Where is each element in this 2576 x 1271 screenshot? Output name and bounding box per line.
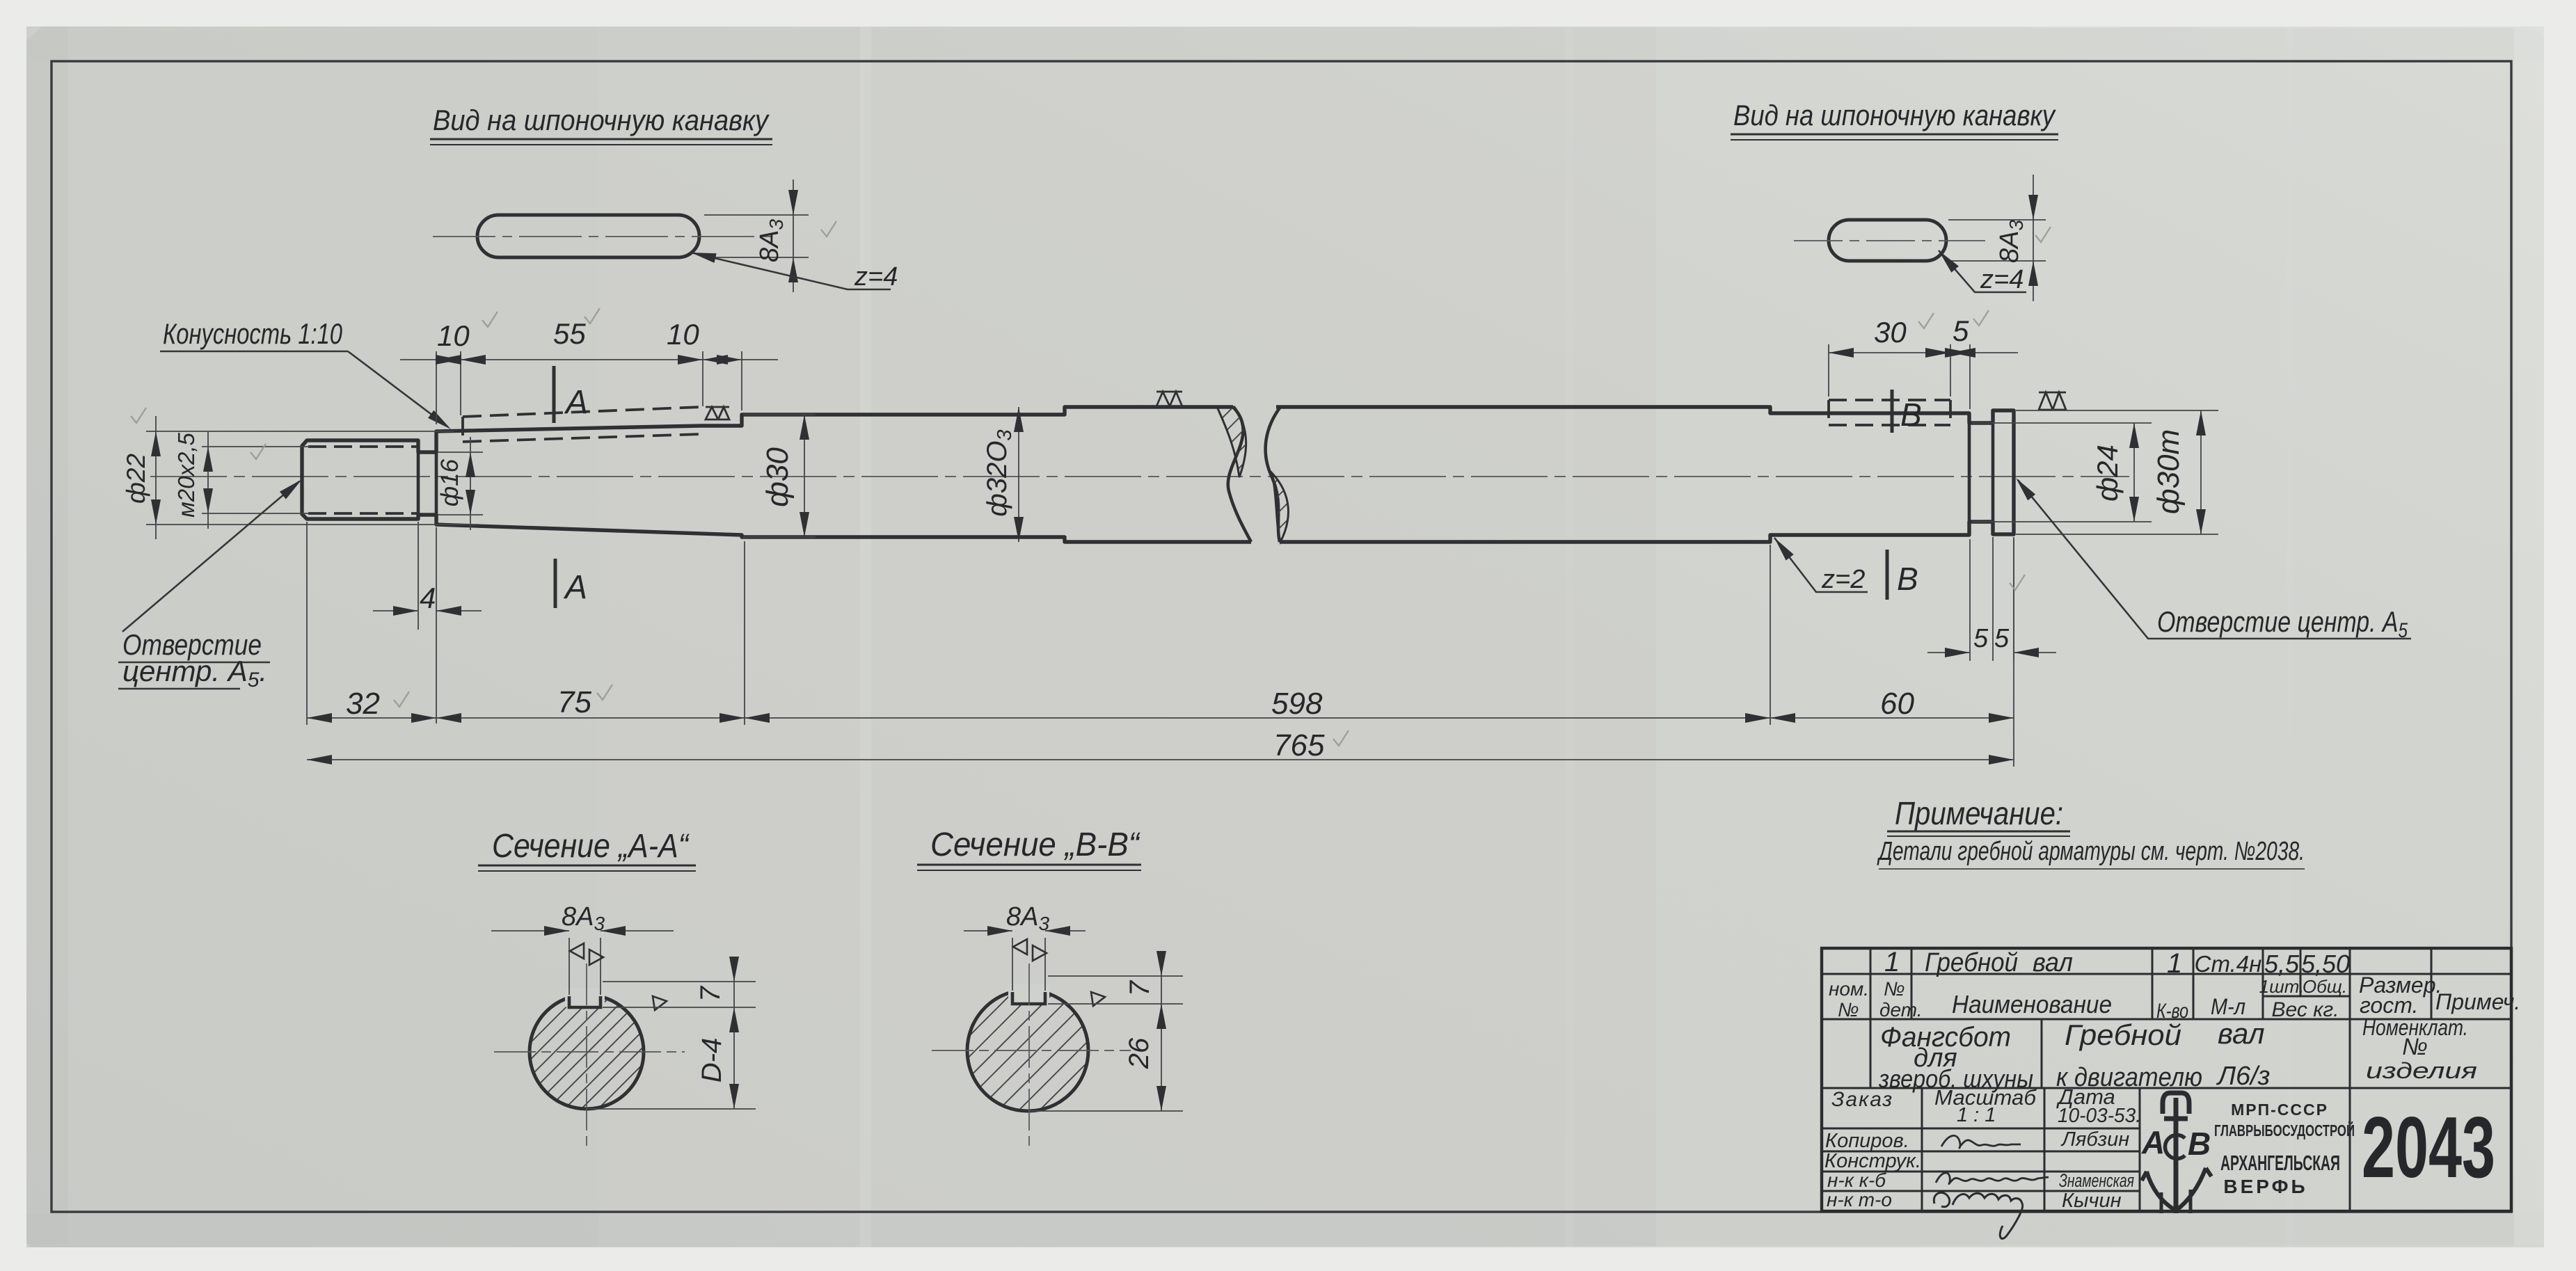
svg-text:10: 10 [667, 318, 699, 351]
svg-text:Конусность 1:10: Конусность 1:10 [163, 317, 342, 350]
svg-text:ВЕРФЬ: ВЕРФЬ [2223, 1176, 2307, 1197]
svg-text:4: 4 [420, 582, 436, 614]
svg-text:26: 26 [1124, 1037, 1154, 1069]
svg-text:Знаменская: Знаменская [2059, 1170, 2134, 1191]
svg-text:5: 5 [1994, 624, 2010, 653]
svg-text:№: № [2402, 1034, 2428, 1060]
svg-text:Вес кг.: Вес кг. [2272, 998, 2339, 1021]
svg-text:гост.: гост. [2360, 993, 2418, 1018]
svg-text:В: В [2188, 1126, 2211, 1162]
svg-text:дет.: дет. [1879, 999, 1923, 1021]
svg-text:7: 7 [1124, 980, 1155, 996]
svg-text:н-к т-о: н-к т-о [1827, 1189, 1892, 1210]
svg-text:А: А [563, 569, 587, 606]
svg-text:ф30: ф30 [761, 447, 795, 507]
svg-text:н-к к-б: н-к к-б [1827, 1169, 1886, 1191]
svg-text:598: 598 [1271, 687, 1323, 721]
svg-text:Сечение „В-В“: Сечение „В-В“ [930, 826, 1141, 863]
svg-text:5: 5 [1953, 314, 1969, 347]
svg-text:Заказ: Заказ [1831, 1088, 1893, 1111]
svg-text:1шт.: 1шт. [2259, 976, 2305, 997]
svg-text:А: А [2141, 1124, 2165, 1160]
svg-text:Наименование: Наименование [1952, 990, 2112, 1018]
svg-text:10-03-53.: 10-03-53. [2058, 1105, 2141, 1127]
svg-text:30: 30 [1874, 316, 1907, 349]
svg-text:МРП-СССР: МРП-СССР [2231, 1101, 2328, 1119]
svg-text:60: 60 [1880, 687, 1914, 721]
svg-text:ф24: ф24 [2091, 445, 2124, 502]
svg-text:Лябзин: Лябзин [2060, 1128, 2129, 1151]
svg-text:ф32О3: ф32О3 [982, 429, 1016, 516]
svg-text:Примеч.: Примеч. [2435, 989, 2520, 1014]
svg-text:10: 10 [437, 319, 470, 352]
svg-text:32: 32 [346, 687, 380, 721]
svg-text:В: В [1897, 561, 1918, 597]
svg-text:Вид на шпоночную канавку: Вид на шпоночную канавку [433, 104, 770, 136]
svg-text:№: № [1884, 978, 1905, 1000]
svg-text:55: 55 [553, 317, 586, 350]
svg-text:вал: вал [2033, 948, 2073, 977]
svg-text:z=4: z=4 [1980, 265, 2024, 294]
svg-text:765: 765 [1273, 728, 1325, 762]
svg-text:А: А [564, 384, 588, 421]
svg-text:D-4: D-4 [697, 1038, 727, 1082]
svg-text:ном.: ном. [1829, 978, 1869, 1000]
svg-text:Кычин: Кычин [2062, 1190, 2122, 1212]
svg-text:изделия: изделия [2366, 1058, 2477, 1083]
svg-text:ф22: ф22 [122, 454, 150, 504]
svg-text:5: 5 [1973, 624, 1989, 653]
svg-text:Гребной: Гребной [1925, 948, 2018, 977]
svg-text:ГЛАВРЫБОСУДОСТРОЙ: ГЛАВРЫБОСУДОСТРОЙ [2214, 1121, 2355, 1140]
svg-text:1 : 1: 1 : 1 [1957, 1104, 1996, 1126]
svg-text:ф30т: ф30т [2152, 429, 2186, 514]
svg-text:2043: 2043 [2362, 1100, 2495, 1196]
svg-text:1: 1 [2167, 948, 2182, 979]
svg-text:№: № [1838, 999, 1859, 1021]
svg-text:Общ.: Общ. [2303, 976, 2347, 997]
svg-text:М-л: М-л [2211, 994, 2245, 1019]
svg-text:Вид на шпоночную канавку: Вид на шпоночную канавку [1733, 99, 2057, 131]
svg-text:7: 7 [695, 985, 726, 1002]
svg-text:Детали гребной арматуры см.: Детали гребной арматуры см. черт. №2038. [1877, 837, 2305, 866]
svg-text:Л6/з: Л6/з [2216, 1062, 2270, 1091]
svg-text:Гребной: Гребной [2065, 1018, 2181, 1051]
svg-text:В: В [1900, 397, 1922, 433]
svg-text:z=4: z=4 [854, 262, 898, 291]
svg-text:75: 75 [557, 685, 591, 719]
svg-text:5,5: 5,5 [2264, 950, 2300, 978]
svg-text:АРХАНГЕЛЬСКАЯ: АРХАНГЕЛЬСКАЯ [2220, 1151, 2340, 1175]
svg-text:1: 1 [1884, 947, 1900, 977]
svg-text:z=2: z=2 [1821, 565, 1865, 594]
svg-text:Примечание:: Примечание: [1895, 795, 2063, 831]
svg-text:5,50: 5,50 [2301, 950, 2350, 978]
svg-text:Сечение „А-А“: Сечение „А-А“ [492, 828, 690, 865]
svg-text:Копиров.: Копиров. [1825, 1130, 1909, 1152]
svg-text:вал: вал [2218, 1017, 2265, 1050]
svg-text:центр. А5.: центр. А5. [122, 655, 267, 692]
svg-text:ф16: ф16 [436, 458, 463, 506]
svg-text:м20х2,5: м20х2,5 [173, 433, 199, 518]
svg-text:Ст.4н: Ст.4н [2195, 951, 2262, 977]
svg-text:Отверстие центр. А5: Отверстие центр. А5 [2157, 605, 2408, 642]
